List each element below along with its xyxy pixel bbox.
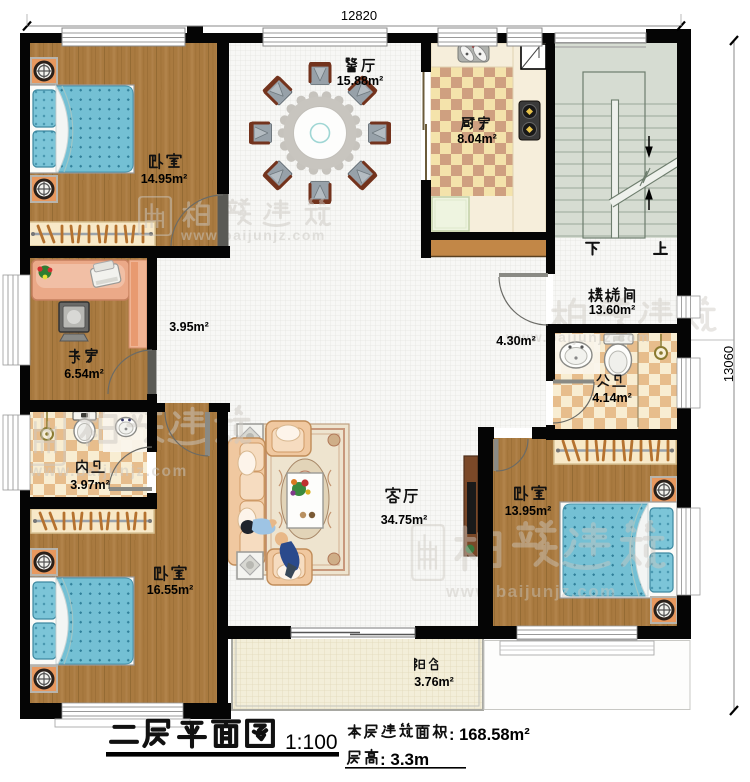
svg-text:www.baijunjz.com: www.baijunjz.com (180, 227, 326, 243)
svg-text:4.14m²: 4.14m² (592, 391, 632, 405)
svg-text:15.88m²: 15.88m² (337, 74, 384, 88)
svg-text:www.baijunjz.com: www.baijunjz.com (445, 582, 617, 601)
svg-text:14.95m²: 14.95m² (141, 172, 188, 186)
svg-text:3.95m²: 3.95m² (169, 320, 209, 334)
svg-text:13060: 13060 (721, 346, 736, 382)
svg-text:3.76m²: 3.76m² (414, 675, 454, 689)
svg-text:13.60m²: 13.60m² (589, 303, 636, 317)
svg-text:4.30m²: 4.30m² (496, 334, 536, 348)
svg-text:12820: 12820 (341, 8, 377, 23)
svg-text:16.55m²: 16.55m² (147, 583, 194, 597)
svg-text:: 168.58m²: : 168.58m² (449, 726, 530, 744)
svg-text:13.95m²: 13.95m² (505, 504, 552, 518)
svg-text:8.04m²: 8.04m² (457, 132, 497, 146)
svg-text:34.75m²: 34.75m² (381, 513, 428, 527)
svg-text:3.97m²: 3.97m² (70, 478, 110, 492)
svg-text:1:100: 1:100 (285, 731, 338, 754)
svg-text:6.54m²: 6.54m² (64, 367, 104, 381)
svg-text:: 3.3m: : 3.3m (380, 750, 429, 769)
